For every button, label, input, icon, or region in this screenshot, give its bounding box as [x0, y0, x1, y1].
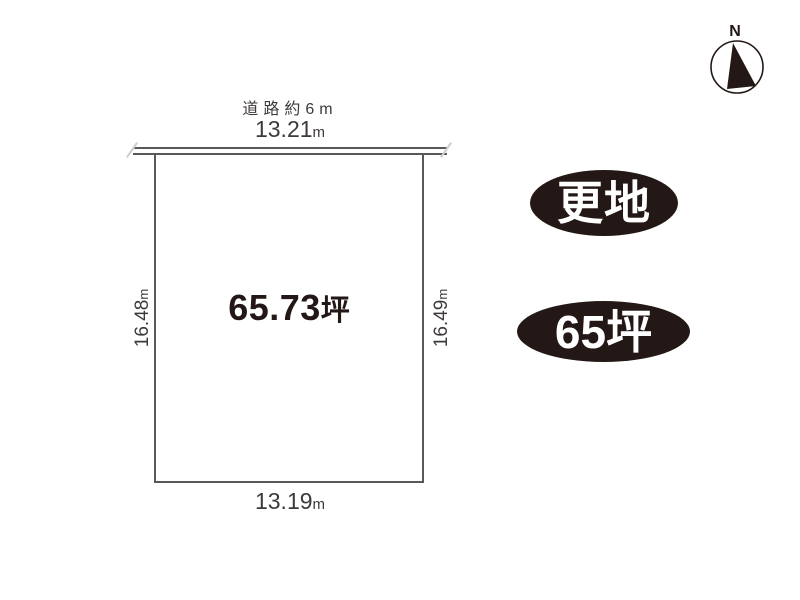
- dimension-left: 16.48m: [132, 273, 154, 363]
- plot-area-label: 65.73坪: [228, 290, 350, 326]
- dimension-top-value: 13.21: [255, 116, 313, 142]
- dimension-bottom: 13.19m: [133, 488, 447, 515]
- dimension-bottom-unit: m: [313, 496, 326, 513]
- land-plot-diagram: 道路約6m 13.21m 65.73坪 16.48m 16.49m 13.19m…: [0, 0, 800, 600]
- road-line-break-left: [126, 142, 138, 158]
- dimension-top-unit: m: [313, 124, 326, 141]
- dimension-top: 13.21m: [133, 116, 447, 143]
- badge-sarachi: 更地: [530, 170, 678, 236]
- plot-boundary: 65.73坪: [154, 153, 424, 483]
- compass-icon: N: [702, 16, 772, 98]
- compass-needle-icon: [727, 43, 756, 89]
- plot-area-unit: 坪: [321, 295, 350, 327]
- dimension-right-value: 16.49: [431, 300, 452, 348]
- dimension-left-unit: m: [136, 289, 151, 300]
- dimension-right-unit: m: [435, 289, 450, 300]
- plot-area-value: 65.73: [228, 287, 321, 328]
- dimension-left-value: 16.48: [132, 300, 153, 348]
- road-edge-line-upper: [133, 147, 447, 149]
- badge-sarachi-label: 更地: [557, 180, 651, 226]
- compass-north-indicator: N: [702, 16, 772, 98]
- dimension-right: 16.49m: [431, 273, 453, 363]
- dimension-bottom-value: 13.19: [255, 488, 313, 514]
- badge-65tsubo: 65坪: [517, 301, 690, 362]
- compass-n-label: N: [729, 23, 741, 40]
- badge-65tsubo-label: 65坪: [555, 309, 652, 355]
- road-line-break-right: [440, 142, 452, 158]
